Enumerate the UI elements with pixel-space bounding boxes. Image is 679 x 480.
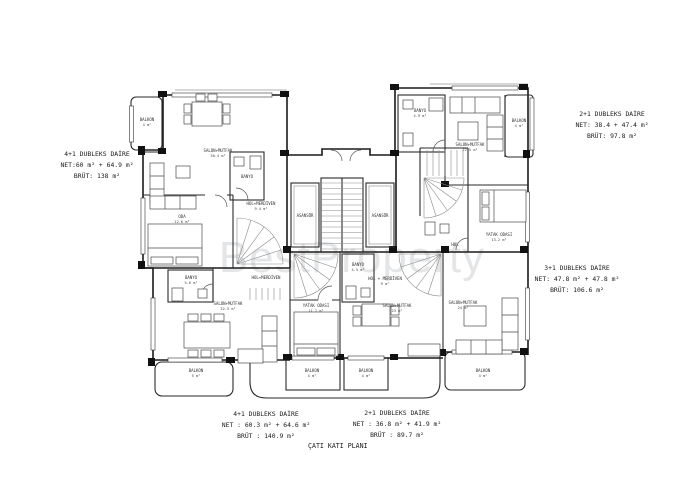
room-label: BANYO bbox=[185, 275, 198, 280]
room-area: 5 m² bbox=[192, 374, 201, 378]
room-label: BALKON bbox=[512, 118, 527, 123]
room-label: BALKON bbox=[359, 368, 374, 373]
plan-title: ÇATI KATI PLANI bbox=[308, 442, 368, 450]
room-area: 4 m² bbox=[143, 123, 152, 127]
furniture bbox=[148, 94, 526, 363]
unit-annotation-name: 2+1 DUBLEKS DAİRE bbox=[364, 408, 430, 417]
room-area: 4 m² bbox=[362, 374, 371, 378]
bed-icon bbox=[480, 190, 526, 222]
unit-annotation-net: NET : 36.8 m² + 41.9 m² bbox=[353, 420, 442, 428]
room-area: 5.6 m² bbox=[185, 281, 198, 285]
room-area: 13.2 m² bbox=[491, 238, 506, 242]
unit-annotation-name: 2+1 DUBLEKS DAİRE bbox=[579, 109, 645, 118]
unit-annotation-brut: BRÜT: 97.8 m² bbox=[587, 131, 637, 140]
room-label: SALON+MUTFAK bbox=[456, 142, 485, 147]
bed-icon bbox=[148, 224, 202, 266]
unit-annotation-brut: BRÜT: 138 m² bbox=[74, 171, 120, 180]
room-area: 9 m² bbox=[381, 282, 390, 286]
room-label: SALON+MUTFAK bbox=[214, 301, 243, 306]
room-label: BALKON bbox=[476, 368, 491, 373]
sofa-icon bbox=[238, 316, 277, 363]
room-area: 30.4 m² bbox=[210, 154, 225, 158]
room-label: YATAK ODASI bbox=[303, 303, 330, 308]
unit-annotation-net: NET : 60.3 m² + 64.6 m² bbox=[222, 421, 311, 429]
room-area: 4 m² bbox=[308, 374, 317, 378]
room-area: 12.6 m² bbox=[174, 220, 189, 224]
room-label: SALON+MUTFAK bbox=[449, 300, 478, 305]
dining-table-icon bbox=[184, 94, 230, 126]
room-area: 4 m² bbox=[515, 124, 524, 128]
room-label: ASANSÖR bbox=[372, 213, 389, 218]
unit-annotation-name: 4+1 DUBLEKS DAİRE bbox=[64, 149, 130, 158]
room-area: 22.5 m² bbox=[462, 148, 477, 152]
room-label: ODA bbox=[178, 214, 186, 219]
bed-icon bbox=[294, 312, 338, 356]
room-label: HOL bbox=[451, 242, 459, 247]
unit-annotation-name: 4+1 DUBLEKS DAİRE bbox=[233, 409, 299, 418]
unit-annotation-net: NET: 38.4 + 47.4 m² bbox=[575, 121, 648, 129]
room-label: YATAK ODASI bbox=[486, 232, 513, 237]
floor-plan-canvas: BestProperty bbox=[0, 0, 679, 480]
unit-annotation-name: 3+1 DUBLEKS DAİRE bbox=[544, 263, 610, 272]
room-label: ASANSÖR bbox=[297, 213, 314, 218]
unit-annotation-net: NET:60 m² + 64.9 m² bbox=[60, 161, 133, 169]
room-label: SALON+MUTFAK bbox=[204, 148, 233, 153]
unit-annotation-brut: BRÜT : 89.7 m² bbox=[370, 430, 424, 439]
room-label: BANYO bbox=[241, 174, 254, 179]
room-area: 4.9 m² bbox=[414, 114, 427, 118]
unit-annotation-net: NET: 47.8 m² + 47.8 m² bbox=[535, 275, 620, 283]
room-label: HOL + MERDİVEN bbox=[368, 276, 402, 281]
floorplan-page: BestProperty bbox=[0, 0, 679, 480]
room-label: BALKON bbox=[305, 368, 320, 373]
dining-table-icon bbox=[184, 314, 230, 357]
room-area: 4 m² bbox=[479, 374, 488, 378]
unit-annotation-brut: BRÜT : 140.9 m² bbox=[237, 431, 295, 440]
sofa-icon bbox=[150, 163, 196, 209]
room-label: HOL+MERDİVEN bbox=[247, 201, 276, 206]
room-area: 24 m² bbox=[458, 306, 469, 310]
room-label: BALKON bbox=[140, 117, 155, 122]
unit-annotation-brut: BRÜT: 106.6 m² bbox=[550, 285, 604, 294]
room-label: BANYO bbox=[414, 108, 427, 113]
room-area: 4.5 m² bbox=[352, 268, 365, 272]
room-area: 32.5 m² bbox=[220, 307, 235, 311]
room-label: BANYO bbox=[352, 262, 365, 267]
room-label: SALON+MUTFAK bbox=[383, 303, 412, 308]
room-label: HOL+MERDİVEN bbox=[252, 275, 281, 280]
room-area: 11.1 m² bbox=[308, 309, 323, 313]
room-label: BALKON bbox=[189, 368, 204, 373]
room-area: 23 m² bbox=[392, 309, 403, 313]
room-area: 9.4 m² bbox=[255, 207, 268, 211]
